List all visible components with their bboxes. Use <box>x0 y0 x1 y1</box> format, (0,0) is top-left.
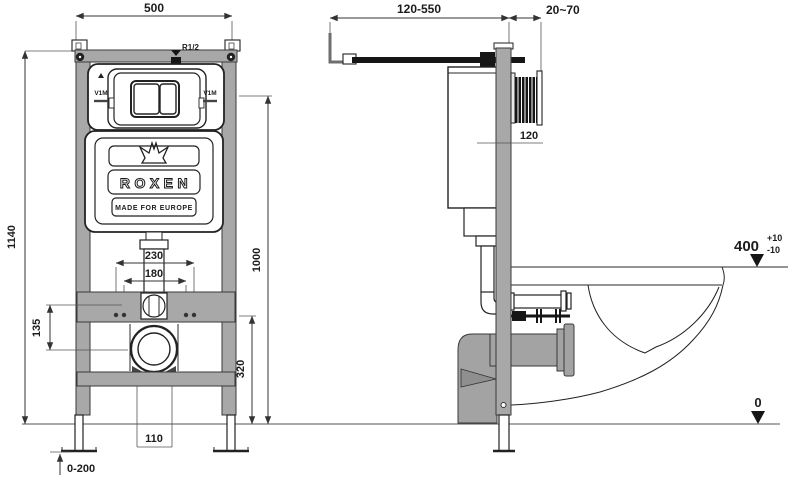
dim-outer-holes-label: 230 <box>145 250 163 262</box>
flush-shaft <box>511 71 542 125</box>
stud-hole <box>184 313 188 317</box>
drain-seal-inner <box>138 333 170 365</box>
side-view: 120-550 20~70 <box>330 2 788 451</box>
frame-rail-side <box>496 48 511 415</box>
foot-left <box>61 415 97 451</box>
rim-tol-plus: +10 <box>767 233 782 243</box>
dim-width-500: 500 <box>76 1 232 43</box>
dim-width-label: 500 <box>144 1 164 15</box>
drain-outlet <box>130 324 178 373</box>
rail-bolt-hole <box>501 403 506 408</box>
stud-hole <box>192 313 196 317</box>
dim-outlet-height-320: 320 <box>235 316 256 424</box>
dim-feet-adjust-label: 0-200 <box>67 463 95 475</box>
dim-outlet-height-label: 320 <box>235 360 247 378</box>
flush-button-small <box>160 84 176 114</box>
floor-level-label: 0 <box>754 395 761 410</box>
brand-text: ROXEN <box>120 175 192 191</box>
dim-inner-holes-label: 180 <box>145 268 163 280</box>
plate-clip-left <box>109 98 114 108</box>
mounting-studs <box>509 291 571 323</box>
stud-hole <box>122 313 126 317</box>
dim-drain-gap-110: 110 <box>137 386 172 447</box>
level-triangle-icon <box>750 254 764 267</box>
dim-plate-recess-label: 20~70 <box>546 3 580 17</box>
plate-mark-right: V1M <box>203 90 216 97</box>
foot-right <box>213 415 249 451</box>
dim-stud-to-drain-label: 135 <box>31 319 43 337</box>
level-marker-0: 0 <box>751 395 765 424</box>
cistern-tank <box>448 67 497 208</box>
installation-drawing: 500 1140 R1/2 <box>0 0 800 484</box>
front-view: 500 1140 R1/2 <box>6 1 780 475</box>
rim-height-label: 400 <box>734 238 759 255</box>
dim-height-label: 1140 <box>6 225 18 249</box>
dim-frame-depth-label: 120 <box>520 130 538 142</box>
outlet-flange-outer <box>564 324 574 376</box>
drain-elbow <box>458 324 574 423</box>
inlet-label: R1/2 <box>182 43 199 52</box>
dim-plate-height-label: 1000 <box>251 248 263 272</box>
flush-downpipe <box>481 246 494 292</box>
bowl-inner-curve <box>588 285 719 353</box>
plate-clip-right <box>199 98 204 108</box>
dim-supply-pipe-label: 120-550 <box>397 2 441 16</box>
frame-top-rail <box>75 50 237 62</box>
level-triangle-icon <box>751 411 765 424</box>
tagline-text: MADE FOR EUROPE <box>115 205 193 212</box>
flush-bend-collar <box>140 240 168 249</box>
level-marker-400: 400 +10 -10 <box>734 233 782 267</box>
dim-supply-pipe: 120-550 <box>330 2 509 44</box>
stud-hole <box>114 313 118 317</box>
dim-height-1140: 1140 <box>6 51 73 424</box>
dim-drain-gap-label: 110 <box>145 433 163 445</box>
rail-clamp <box>480 52 495 67</box>
dim-feet-adjust: 0-200 <box>50 452 95 475</box>
cistern-side <box>448 67 500 314</box>
flush-plate-section: V1M V1M <box>88 64 224 130</box>
flush-button-large <box>134 84 159 114</box>
logo-section: ROXEN MADE FOR EUROPE <box>85 131 223 232</box>
plate-mark-left: V1M <box>94 90 107 97</box>
rim-tol-minus: -10 <box>767 245 780 255</box>
frame-base-rail <box>77 372 235 386</box>
